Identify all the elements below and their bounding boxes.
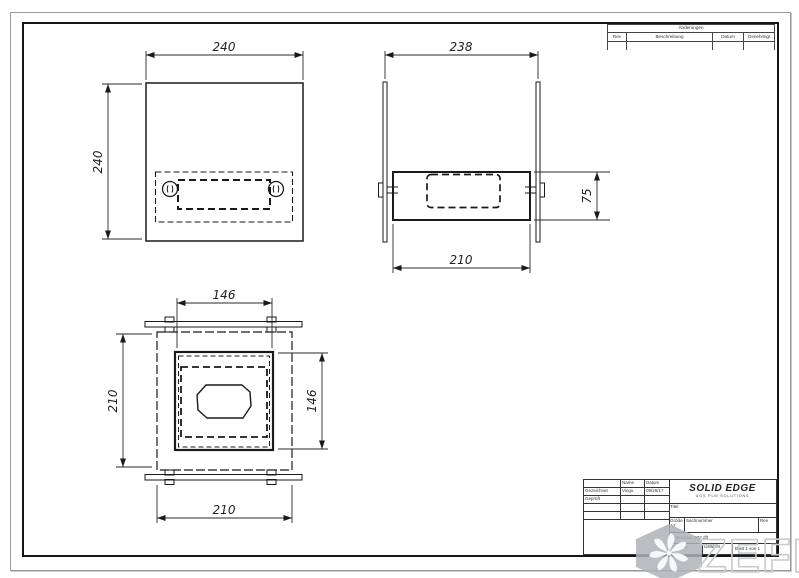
logo-title: SOLID EDGE bbox=[689, 484, 756, 494]
dim-side-height: 75 bbox=[580, 188, 594, 203]
dim-plan-width: 210 bbox=[213, 503, 236, 517]
title-block-main: SOLID EDGE UGS PLM SOLUTIONS Titel Größe… bbox=[669, 480, 776, 554]
dim-front-width: 240 bbox=[213, 40, 236, 54]
rev-field: Rev bbox=[759, 518, 776, 532]
revision-table: Änderungen Rev Beschreibung Datum Genehm… bbox=[607, 24, 775, 50]
revision-col-approved: Genehmigt bbox=[744, 33, 774, 41]
filename-field: Dateiname: 002.dft bbox=[669, 533, 776, 544]
scale-row: Maßstab Gewicht Blatt 1 von 1 bbox=[669, 544, 776, 554]
dim-plan-height: 210 bbox=[106, 389, 120, 412]
revision-col-description: Beschreibung bbox=[627, 33, 713, 41]
title-block: Name Datum Gezeichnet Vingu 09/26/17 Gep… bbox=[583, 479, 777, 555]
doc-number-label: Sachnummer bbox=[686, 518, 713, 523]
scale-field: Maßstab bbox=[669, 544, 703, 554]
date-header: Datum bbox=[645, 480, 669, 488]
name-header: Name bbox=[621, 480, 645, 488]
title-label: Titel bbox=[670, 504, 678, 509]
front-view: 240 240 bbox=[91, 40, 303, 241]
title-field: Titel bbox=[669, 504, 776, 518]
dim-side-width: 238 bbox=[450, 40, 473, 54]
dim-side-inner-width: 210 bbox=[450, 253, 473, 267]
solid-edge-logo: SOLID EDGE UGS PLM SOLUTIONS bbox=[669, 480, 776, 504]
filename-text: Dateiname: 002.dft bbox=[670, 536, 708, 541]
dim-plan-inner-height: 146 bbox=[305, 389, 319, 412]
drawn-label: Gezeichnet bbox=[584, 488, 621, 496]
revision-empty-row bbox=[607, 42, 775, 50]
revision-col-rev: Rev bbox=[608, 33, 627, 41]
drawn-name: Vingu bbox=[621, 488, 645, 496]
drawing-sheet: 240 240 238 bbox=[0, 0, 799, 578]
dim-front-height: 240 bbox=[91, 150, 105, 173]
side-view: 238 210 75 bbox=[379, 40, 611, 273]
drawn-date: 09/26/17 bbox=[645, 488, 669, 496]
revision-table-title: Änderungen bbox=[607, 24, 775, 33]
revision-col-date: Datum bbox=[713, 33, 744, 41]
checked-label: Geprüft bbox=[584, 496, 621, 504]
plan-view: 146 210 146 210 bbox=[106, 288, 328, 523]
sheet-field: Blatt 1 von 1 bbox=[733, 544, 776, 554]
rev-label: Rev bbox=[760, 518, 768, 523]
number-row: Größe A2 Sachnummer Rev bbox=[669, 518, 776, 533]
size-field: Größe A2 bbox=[669, 518, 685, 532]
logo-subtitle: UGS PLM SOLUTIONS bbox=[696, 495, 750, 499]
dim-plan-inner-width: 146 bbox=[213, 288, 236, 302]
doc-number-field: Sachnummer bbox=[685, 518, 759, 532]
size-value: A2 bbox=[670, 524, 684, 529]
weight-field: Gewicht bbox=[703, 544, 733, 554]
title-block-signatures: Name Datum Gezeichnet Vingu 09/26/17 Gep… bbox=[584, 480, 670, 554]
